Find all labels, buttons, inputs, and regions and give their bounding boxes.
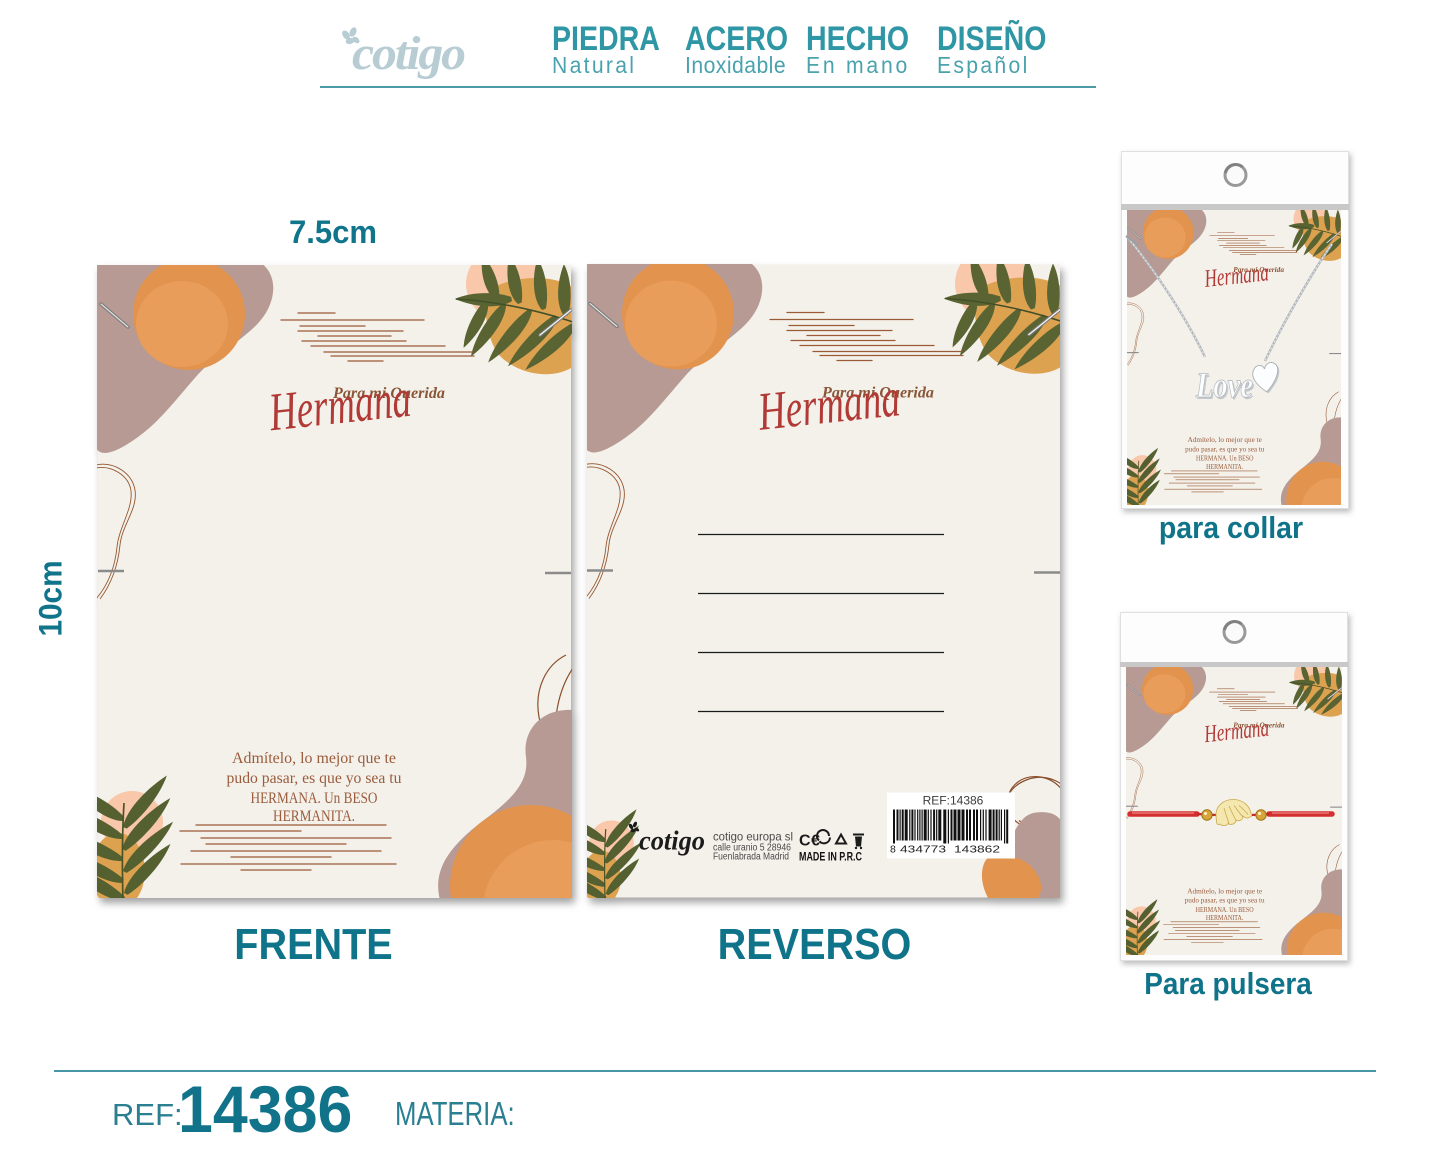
svg-text:cotigo europa sl: cotigo europa sl: [713, 830, 793, 844]
svg-text:Fuenlabrada Madrid: Fuenlabrada Madrid: [713, 852, 789, 863]
svg-text:cotigo: cotigo: [352, 27, 465, 80]
svg-text:8: 8: [890, 844, 896, 856]
svg-text:MADE IN P.R.C: MADE IN P.R.C: [799, 850, 862, 864]
svg-text:REF:14386: REF:14386: [923, 794, 984, 808]
svg-text:cotigo: cotigo: [639, 826, 705, 856]
svg-text:Love: Love: [1195, 365, 1253, 405]
svg-text:434773: 434773: [900, 844, 946, 856]
svg-text:143862: 143862: [954, 844, 1000, 856]
